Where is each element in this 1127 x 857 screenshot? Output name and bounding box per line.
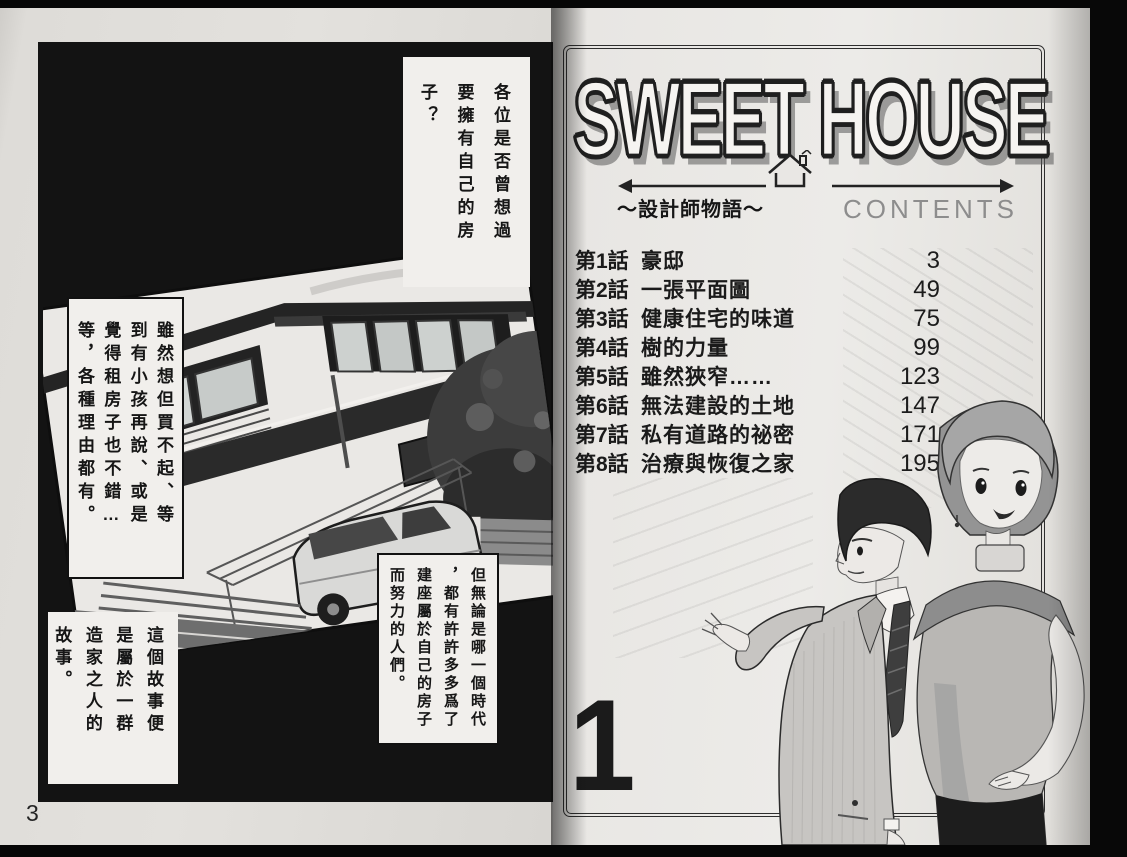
narration-box-story: 這個故事便 是屬於一群 造家之人的 故事。 xyxy=(48,612,178,784)
page-number-left: 3 xyxy=(26,800,39,827)
chapter-page-number: 75 xyxy=(860,304,940,333)
chapter-label: 第4話 xyxy=(575,334,641,363)
toc-row: 第4話 樹的力量 99 xyxy=(575,333,940,362)
characters-illustration xyxy=(690,383,1090,845)
chapter-page-number: 3 xyxy=(860,246,940,275)
chapter-label: 第8話 xyxy=(575,450,641,479)
chapter-label: 第3話 xyxy=(575,305,641,334)
chapter-title: 健康住宅的味道 xyxy=(641,305,860,334)
chapter-title: 樹的力量 xyxy=(641,334,860,363)
toc-row: 第1話 豪邸 3 xyxy=(575,246,940,275)
chapter-label: 第6話 xyxy=(575,392,641,421)
manga-panel: 各位是否曾想過 要擁有自己的房 子？ 雖然想但買不起、等 到有小孩再說、或是 覺… xyxy=(38,42,553,802)
toc-row: 第3話 健康住宅的味道 75 xyxy=(575,304,940,333)
chapter-label: 第7話 xyxy=(575,421,641,450)
left-page: 各位是否曾想過 要擁有自己的房 子？ 雖然想但買不起、等 到有小孩再說、或是 覺… xyxy=(0,8,553,845)
chapter-title: 一張平面圖 xyxy=(641,276,860,305)
narration-box-intro: 各位是否曾想過 要擁有自己的房 子？ xyxy=(403,57,530,287)
chapter-label: 第1話 xyxy=(575,247,641,276)
chapter-title: 豪邸 xyxy=(641,247,860,276)
scan-edge-right xyxy=(1090,0,1127,857)
scan-edge-bottom xyxy=(0,845,1127,857)
volume-number: 1 xyxy=(569,680,636,810)
chapter-label: 第5話 xyxy=(575,363,641,392)
series-subtitle: ～設計師物語～ xyxy=(617,193,764,222)
book-spread-scan: 各位是否曾想過 要擁有自己的房 子？ 雖然想但買不起、等 到有小孩再說、或是 覺… xyxy=(0,0,1127,857)
narration-box-era: 但無論是哪一個時代 ，都有許許多多爲了 建座屬於自己的房子 而努力的人們。 xyxy=(377,553,499,745)
chapter-label: 第2話 xyxy=(575,276,641,305)
chapter-page-number: 49 xyxy=(860,275,940,304)
page-edge-shadow xyxy=(1048,8,1090,845)
house-arrow-icon xyxy=(769,150,811,186)
toc-row: 第2話 一張平面圖 49 xyxy=(575,275,940,304)
scan-edge-top xyxy=(0,0,1127,8)
right-page: SWEET HOUSE ～設計師物語～ CONTENTS 第1話 豪邸 3 第2… xyxy=(553,8,1090,845)
man-character xyxy=(702,479,931,845)
chapter-page-number: 99 xyxy=(860,333,940,362)
contents-heading: CONTENTS xyxy=(843,194,1018,225)
narration-box-reasons: 雖然想但買不起、等 到有小孩再說、或是 覺得租房子也不錯… 等，各種理由都有。 xyxy=(67,297,184,579)
